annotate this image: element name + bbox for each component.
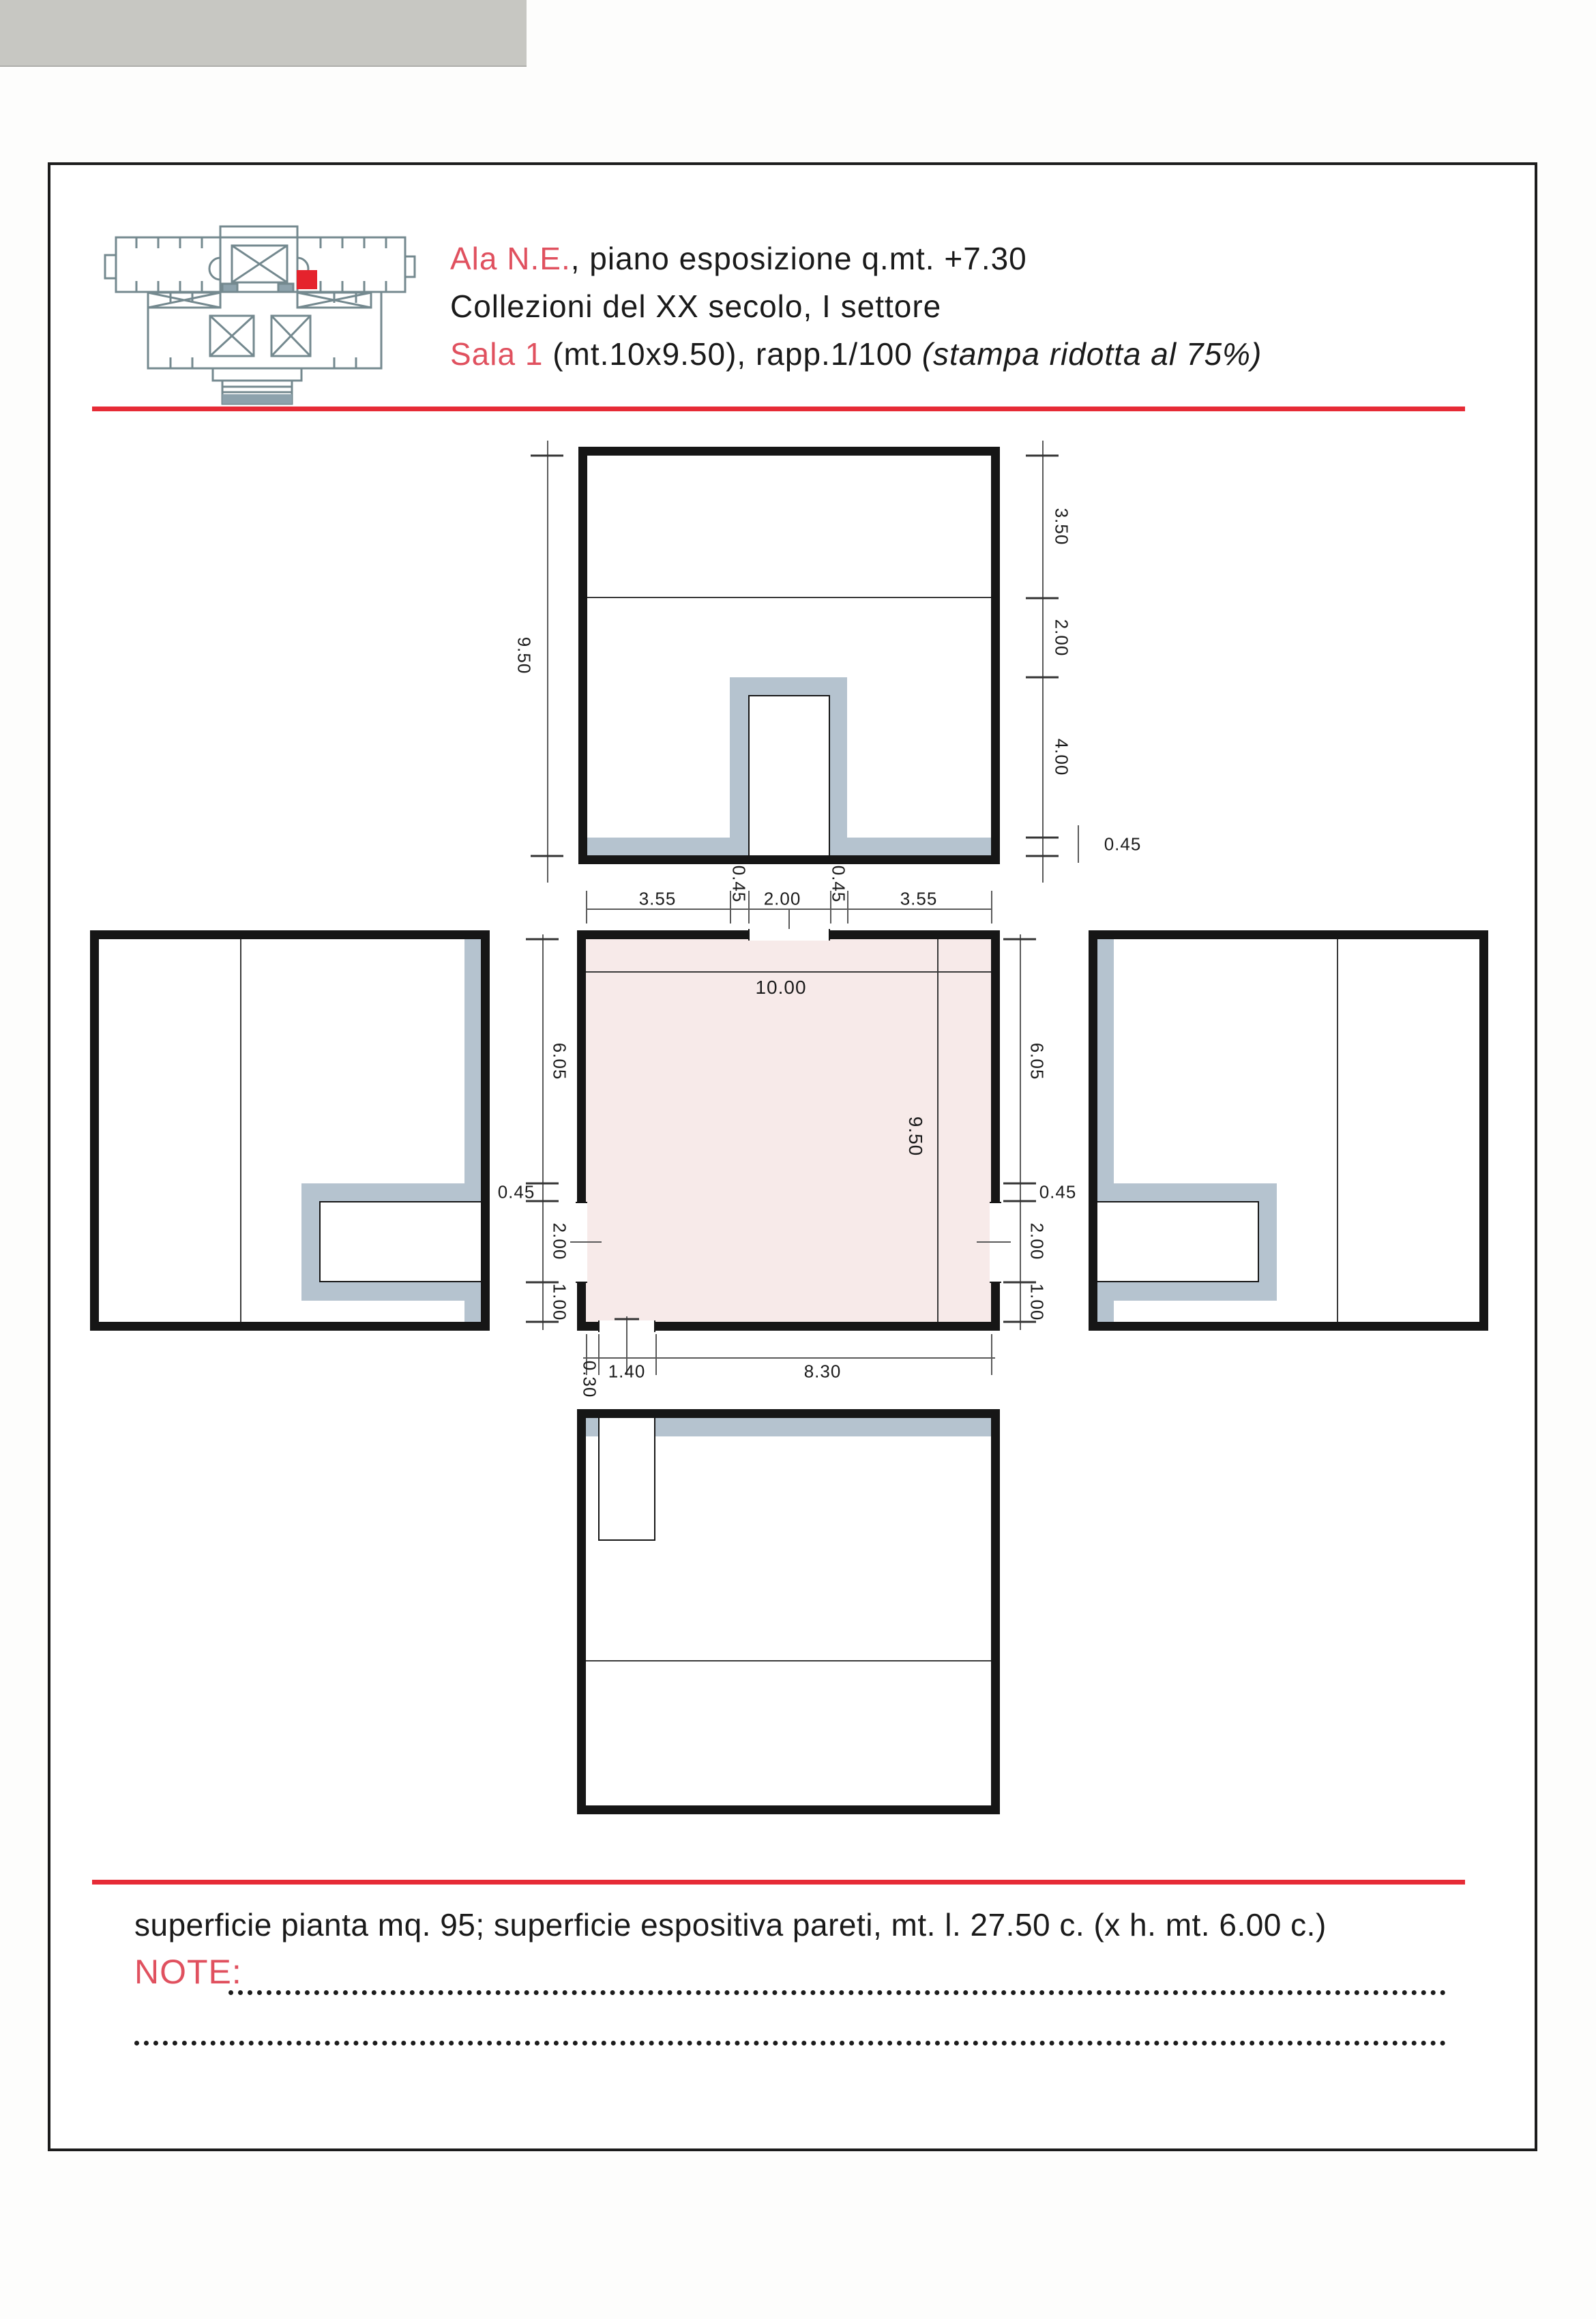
note-label: NOTE: xyxy=(134,1952,242,1992)
dim-bracket-wall xyxy=(1078,825,1079,863)
tick xyxy=(1026,597,1059,600)
dim-chain-plan-east xyxy=(1020,934,1021,1330)
note-dotted-line-1 xyxy=(228,1952,1446,1995)
west-room-shared-wall-lining xyxy=(464,1301,481,1322)
east-room-corridor-wall xyxy=(1097,1282,1277,1301)
tick xyxy=(1003,1183,1036,1185)
witness-line xyxy=(748,891,750,924)
dim-label-south-door: 1.40 xyxy=(608,1361,646,1383)
plan-width-line xyxy=(586,971,991,973)
dim-chain-plan-west xyxy=(542,934,544,1330)
witness-line xyxy=(570,1241,602,1243)
dim-label-east-lower: 1.00 xyxy=(1026,1284,1048,1321)
east-room-partition-line xyxy=(1337,939,1338,1322)
east-room-door-opening xyxy=(1097,1201,1259,1282)
south-room-partition-line xyxy=(586,1660,991,1661)
tick xyxy=(1026,455,1059,457)
east-room-shared-wall-lining xyxy=(1097,939,1114,1183)
west-room-partition-line xyxy=(240,939,241,1322)
dim-label-south-rest: 8.30 xyxy=(804,1361,842,1383)
tick xyxy=(526,939,559,941)
tick xyxy=(526,1321,559,1323)
note-dotted-line-2 xyxy=(134,2005,1446,2045)
dim-label-north-seg-mid: 2.00 xyxy=(1051,619,1072,657)
tick xyxy=(615,1318,639,1320)
witness-line xyxy=(991,891,992,924)
east-room-corridor-wall xyxy=(1097,1183,1277,1201)
building-key-plan xyxy=(95,202,437,407)
dim-label-west-lower: 1.00 xyxy=(549,1284,570,1321)
dim-label-west-upper: 6.05 xyxy=(549,1043,570,1080)
header-line-3-note: (stampa ridotta al 75%) xyxy=(922,336,1262,372)
south-room-door-opening xyxy=(598,1418,655,1541)
tick xyxy=(1026,855,1059,857)
dim-label-north-seg-top: 3.50 xyxy=(1051,508,1072,546)
witness-line xyxy=(730,891,731,924)
witness-line xyxy=(655,1334,657,1375)
witness-line xyxy=(830,891,831,924)
red-rule-top xyxy=(92,407,1465,411)
header-line-2: Collezioni del XX secolo, I settore xyxy=(450,288,941,325)
dim-label-west-wall: 0.45 xyxy=(498,1182,535,1203)
tick xyxy=(1003,939,1036,941)
tick xyxy=(1026,837,1059,839)
west-room-door-opening xyxy=(319,1201,481,1282)
dim-label-north-seg-bottom: 4.00 xyxy=(1051,739,1072,776)
dim-label-wall-thickness: 0.45 xyxy=(1104,834,1142,855)
plan-opening-north xyxy=(748,929,830,941)
tick xyxy=(531,455,563,457)
floor-plan-sheet: Ala N.E., piano esposizione q.mt. +7.30 … xyxy=(0,0,1596,2319)
tick xyxy=(1003,1321,1036,1323)
north-room-door-opening xyxy=(748,695,830,855)
plan-depth-label: 9.50 xyxy=(904,1117,926,1157)
witness-line xyxy=(847,891,848,924)
dim-label-top-door: 2.00 xyxy=(764,889,801,910)
dim-label-top-right: 3.55 xyxy=(900,889,938,910)
wing-label: Ala N.E. xyxy=(450,241,571,276)
dim-label-east-upper: 6.05 xyxy=(1026,1043,1048,1080)
dim-chain-north-left xyxy=(547,441,548,883)
dim-label-jamb-left: 0.45 xyxy=(728,866,750,903)
dim-label-west-door: 2.00 xyxy=(549,1223,570,1260)
plan-width-label: 10.00 xyxy=(755,977,806,999)
dim-label-east-wall: 0.45 xyxy=(1039,1182,1077,1203)
tick xyxy=(531,855,563,857)
dim-label-north-total: 9.50 xyxy=(514,637,535,675)
west-room-corridor-wall xyxy=(301,1282,481,1301)
west-room-corridor-wall xyxy=(301,1183,481,1201)
dim-label-east-door: 2.00 xyxy=(1026,1223,1048,1260)
witness-line xyxy=(991,1334,992,1375)
red-location-marker xyxy=(297,270,317,289)
tick xyxy=(1003,1200,1036,1202)
header-line-3: Sala 1 (mt.10x9.50), rapp.1/100 (stampa … xyxy=(450,336,1262,372)
witness-line xyxy=(977,1241,1011,1243)
east-room-shared-wall-lining xyxy=(1097,1301,1114,1322)
witness-line xyxy=(586,891,587,924)
header-line-1: Ala N.E., piano esposizione q.mt. +7.30 xyxy=(450,240,1027,277)
tick xyxy=(1026,677,1059,679)
dim-label-top-left: 3.55 xyxy=(639,889,677,910)
header-line-1-rest: , piano esposizione q.mt. +7.30 xyxy=(571,241,1027,276)
plan-depth-line xyxy=(937,939,939,1322)
north-room-partition-line xyxy=(587,597,991,598)
summary-text: superficie pianta mq. 95; superficie esp… xyxy=(134,1906,1327,1943)
dim-chain-north-right xyxy=(1042,441,1044,883)
dim-label-south-offset: 0.30 xyxy=(579,1361,600,1398)
header-line-3-mid: (mt.10x9.50), rapp.1/100 xyxy=(543,336,921,372)
room-label: Sala 1 xyxy=(450,336,543,372)
scanner-edge-artifact xyxy=(0,0,527,67)
red-rule-bottom xyxy=(92,1880,1465,1885)
dim-chain-plan-bottom xyxy=(583,1357,995,1359)
west-room-shared-wall-lining xyxy=(464,939,481,1183)
